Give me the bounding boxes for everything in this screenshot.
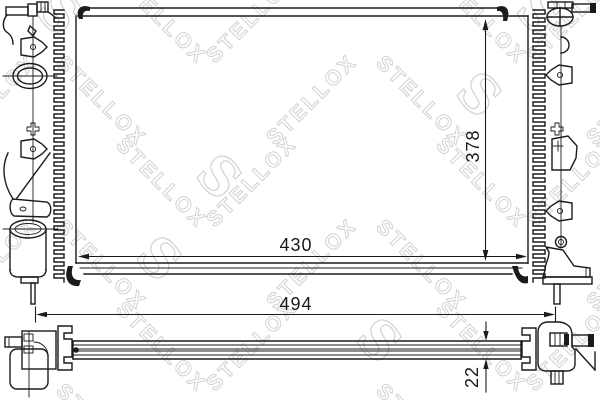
watermark-text: STELLOX bbox=[582, 214, 600, 314]
dimension-core-height-label: 378 bbox=[463, 129, 483, 162]
tank-slope bbox=[17, 153, 50, 198]
watermark-text: STELLOX bbox=[111, 297, 211, 397]
flange bbox=[21, 277, 38, 283]
tank-top-outline bbox=[3, 15, 13, 44]
tank-body bbox=[22, 331, 56, 369]
watermark-text: STELLOX bbox=[371, 379, 471, 400]
mount-pin bbox=[554, 284, 560, 304]
filler-neck-pipe bbox=[6, 7, 28, 15]
watermark-text: STELLOX bbox=[582, 50, 600, 150]
watermark-layer: STELLOXSSTELLOXSTELLOXSTELLOXSSTELLOXSTE… bbox=[0, 0, 600, 400]
mount-lug-upper bbox=[546, 65, 572, 85]
drain-pin bbox=[31, 283, 35, 304]
watermark-text: STELLOX bbox=[202, 0, 302, 68]
side-bracket bbox=[58, 326, 72, 370]
watermark-logo: S bbox=[284, 388, 354, 400]
flag-bracket bbox=[552, 136, 577, 170]
side-bracket bbox=[522, 328, 536, 370]
outlet-pipe bbox=[5, 337, 22, 347]
dimension-core-height: 378 bbox=[463, 19, 488, 261]
tank-side-curve bbox=[4, 153, 13, 199]
core-band bbox=[73, 341, 521, 359]
watermark-text: STELLOX bbox=[111, 0, 211, 69]
dimension-core-width-label: 430 bbox=[279, 235, 312, 255]
watermark-text: STELLOX bbox=[262, 50, 362, 150]
mount-lug-lower bbox=[21, 139, 47, 159]
dimension-thickness-label: 22 bbox=[462, 366, 482, 388]
watermark-text: STELLOX bbox=[51, 51, 151, 151]
radiator-technical-drawing: STELLOXSSTELLOXSTELLOXSTELLOXSSTELLOXSTE… bbox=[0, 0, 600, 400]
watermark-text: STELLOX bbox=[371, 215, 471, 315]
watermark-text: STELLOX bbox=[51, 379, 151, 400]
bracket-arm bbox=[10, 199, 51, 217]
dimension-overall-width-label: 494 bbox=[279, 294, 312, 314]
